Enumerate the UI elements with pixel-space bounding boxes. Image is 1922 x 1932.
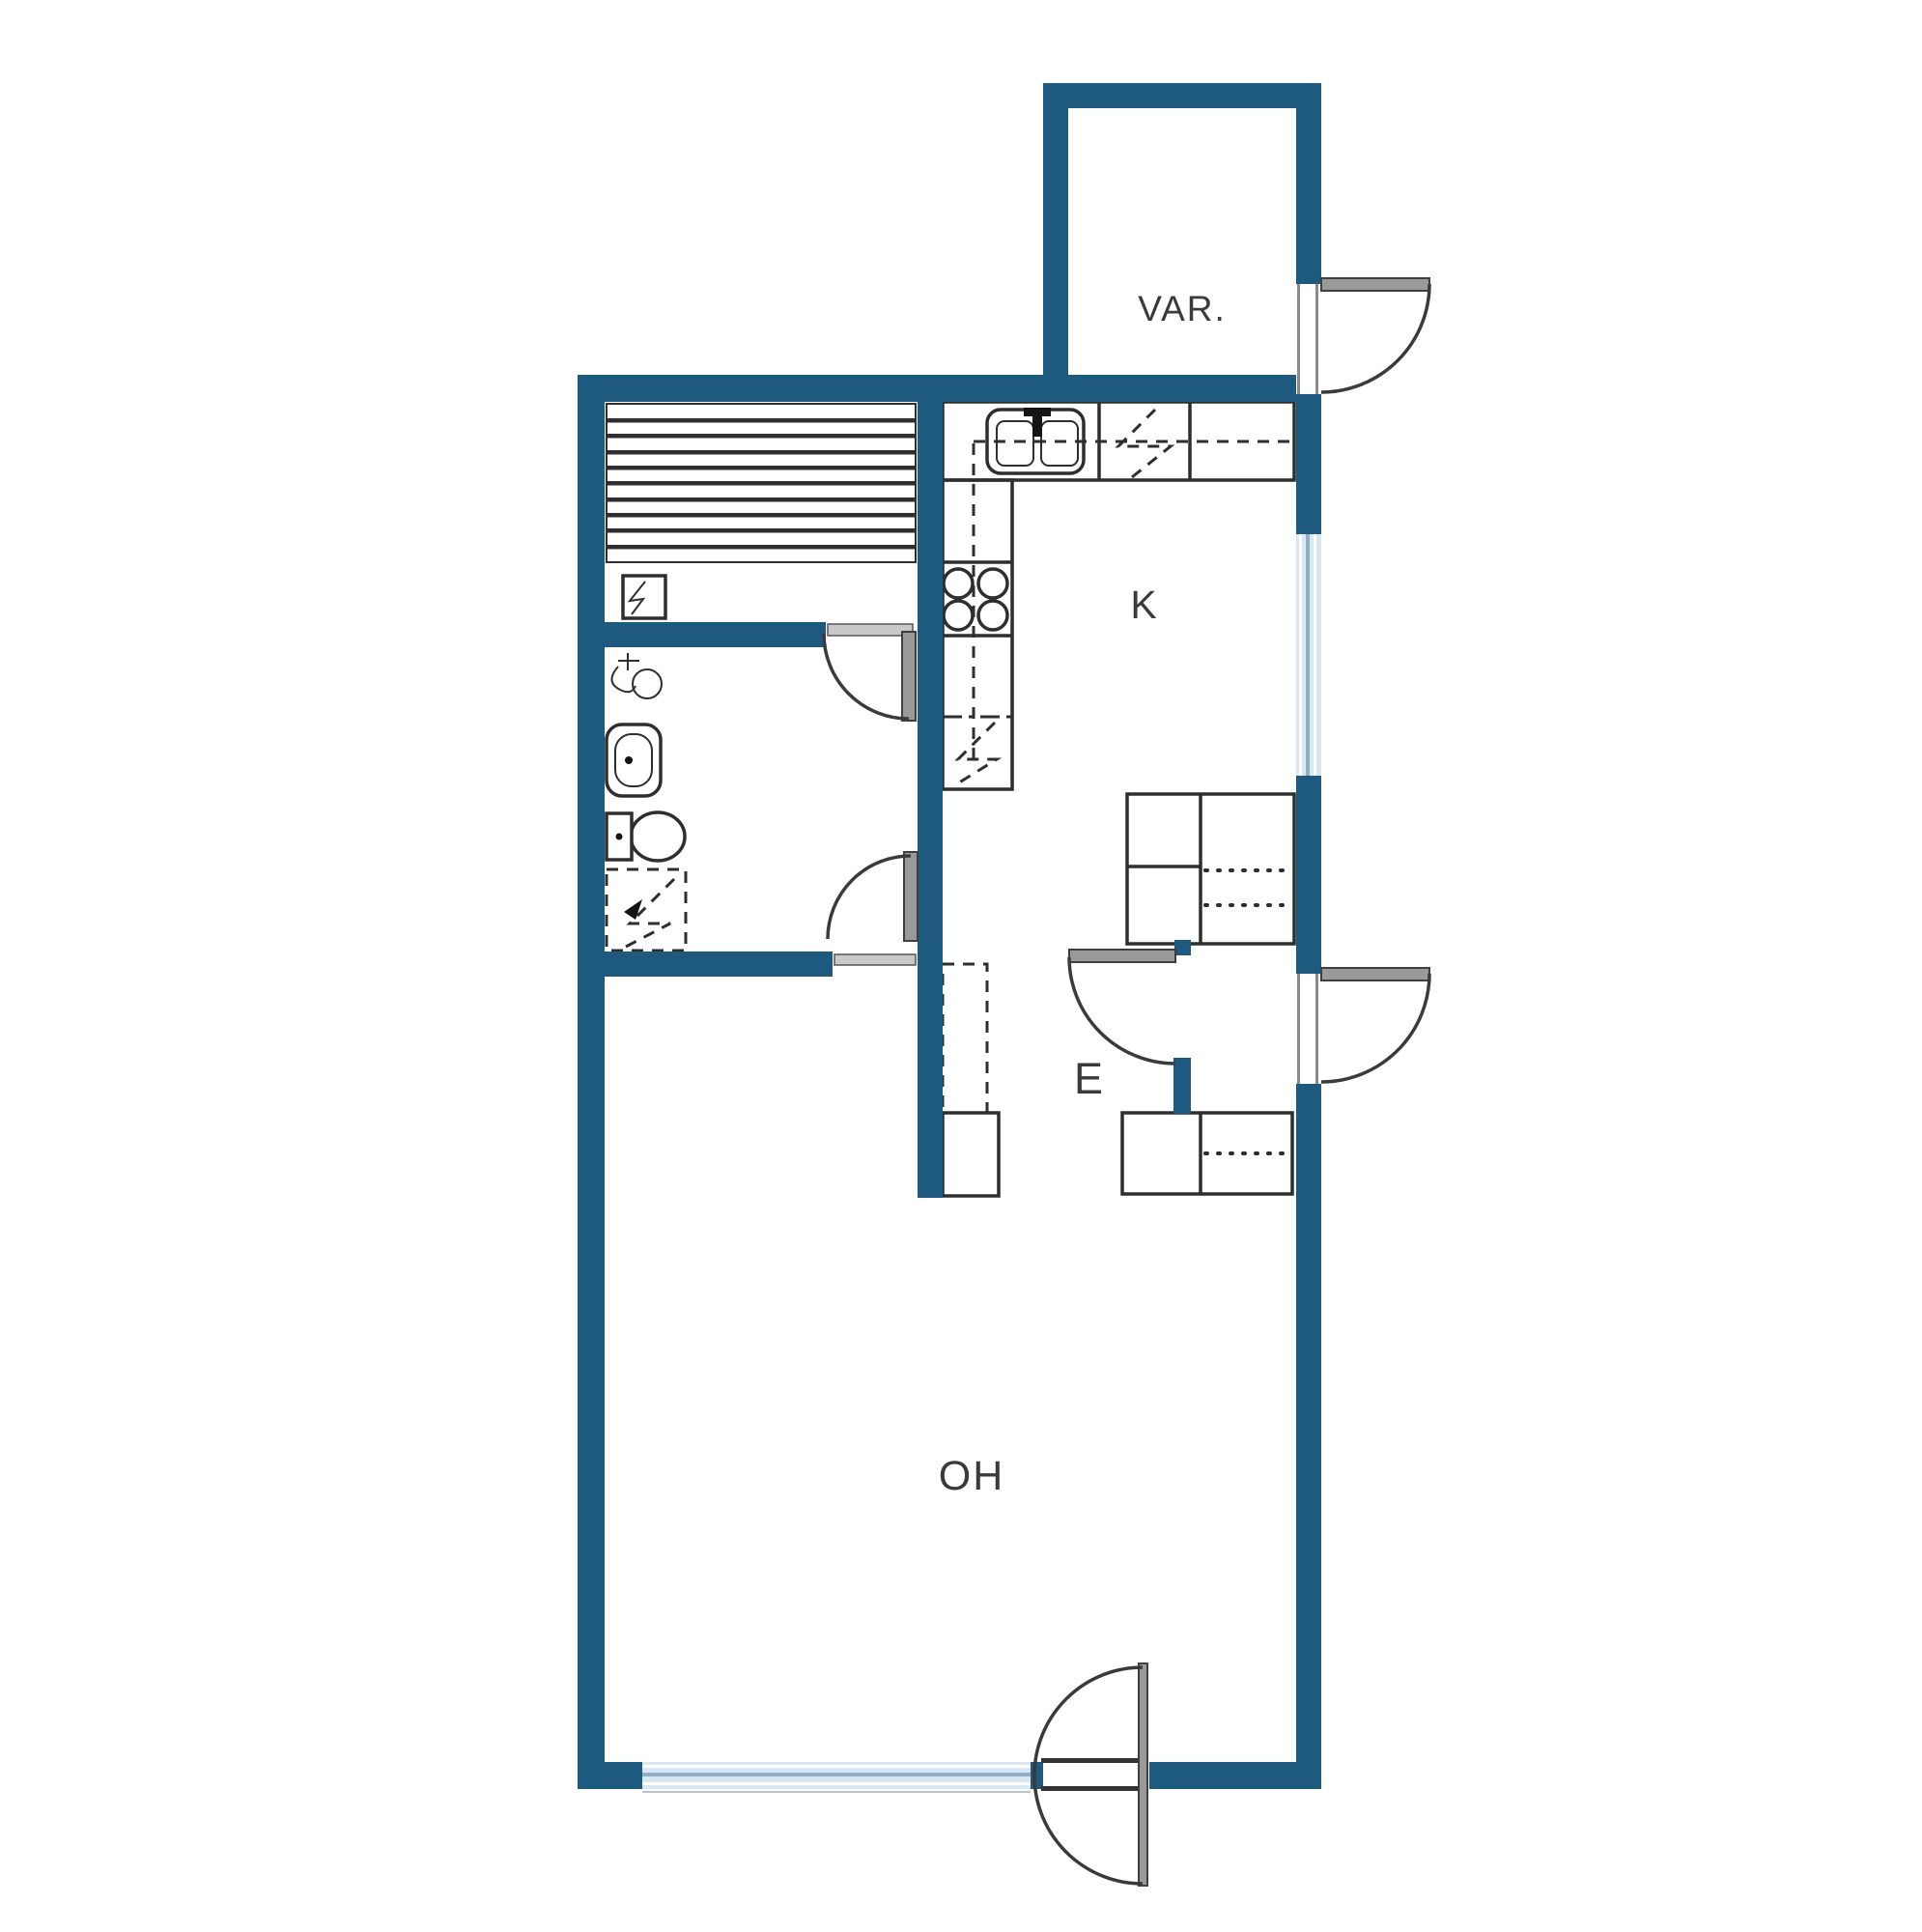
- bench-stripe: [607, 466, 916, 470]
- bench-stripe: [607, 513, 916, 518]
- wall-storage-top: [1043, 83, 1321, 108]
- room-label-hall: E: [1074, 1054, 1105, 1103]
- sauna-bench-stripes: [607, 418, 916, 550]
- room-label-storage: VAR.: [1138, 289, 1227, 328]
- toilet-button: [616, 834, 623, 840]
- window-frame-line: [642, 1765, 1031, 1768]
- bench-stripe: [607, 450, 916, 455]
- wall-right: [1296, 394, 1321, 534]
- door-swing-arc: [1321, 974, 1429, 1082]
- door-threshold: [834, 954, 916, 965]
- room-label-kitchen: K: [1130, 582, 1158, 627]
- door-leaf: [1069, 950, 1175, 962]
- door-jamb: [1297, 284, 1300, 394]
- door-threshold: [1041, 1758, 1143, 1763]
- washbasin-icon: [607, 724, 661, 796]
- door-jamb: [1297, 974, 1300, 1084]
- door-jamb: [1315, 284, 1318, 394]
- bench-stripe: [607, 545, 916, 550]
- bench-stripe: [607, 497, 916, 502]
- burner: [978, 601, 1007, 630]
- window-center-line: [642, 1773, 1031, 1776]
- burner: [944, 601, 973, 630]
- room-label-living-room: OH: [939, 1453, 1005, 1499]
- toilet-bowl: [631, 812, 685, 861]
- floor-areas: [605, 108, 1296, 1762]
- living-room-window: [642, 1762, 1031, 1793]
- wall-right-lower: [1296, 1084, 1321, 1789]
- bench-stripe: [607, 434, 916, 439]
- window-frame-line: [1299, 534, 1302, 776]
- window-center-line: [1306, 534, 1310, 776]
- wall-mid-vertical: [918, 402, 943, 1198]
- floor-plan-drawing: VAR. K E OH: [0, 0, 1922, 1932]
- wall-bottom: [1031, 1762, 1043, 1789]
- door-leaf: [904, 852, 918, 941]
- window-sill-line: [642, 1791, 1031, 1793]
- wall-storage-left: [1043, 83, 1068, 402]
- kitchen-window: [1296, 534, 1321, 776]
- door-threshold: [828, 624, 913, 636]
- wall-right-upper: [1296, 83, 1321, 284]
- toilet-icon: [607, 812, 685, 861]
- wall-top: [578, 375, 1321, 402]
- wall-right: [1296, 776, 1321, 974]
- basin-drain: [625, 756, 633, 764]
- wall-bottom: [1149, 1762, 1321, 1789]
- door-leaf: [1321, 278, 1429, 291]
- bench-stripe: [607, 528, 916, 533]
- bench-stripe: [607, 481, 916, 486]
- door-threshold: [1041, 1786, 1143, 1791]
- window-frame-line: [642, 1782, 1031, 1785]
- burner: [944, 569, 973, 598]
- door-leaf: [902, 632, 916, 721]
- storage-room-floor: [1068, 108, 1296, 375]
- wall-bathroom-bottom: [578, 952, 833, 977]
- wall-left: [578, 375, 605, 1789]
- wall-bottom: [578, 1762, 642, 1789]
- bench-stripe: [607, 418, 916, 423]
- burner: [978, 569, 1007, 598]
- door-jamb: [1315, 974, 1318, 1084]
- window-frame-line: [1314, 534, 1316, 776]
- door-swing-arc: [1321, 284, 1429, 392]
- door-leaf: [1139, 1663, 1147, 1886]
- door-opening: [1043, 1762, 1149, 1789]
- floor-plan-page: VAR. K E OH: [0, 0, 1922, 1932]
- wall-hall-partial: [1173, 1058, 1191, 1114]
- storage-door: [1296, 278, 1429, 394]
- door-leaf: [1321, 968, 1429, 980]
- wall-sauna-divider: [578, 622, 826, 647]
- entrance-door: [1296, 968, 1429, 1084]
- wall-hall-stub: [1174, 940, 1191, 955]
